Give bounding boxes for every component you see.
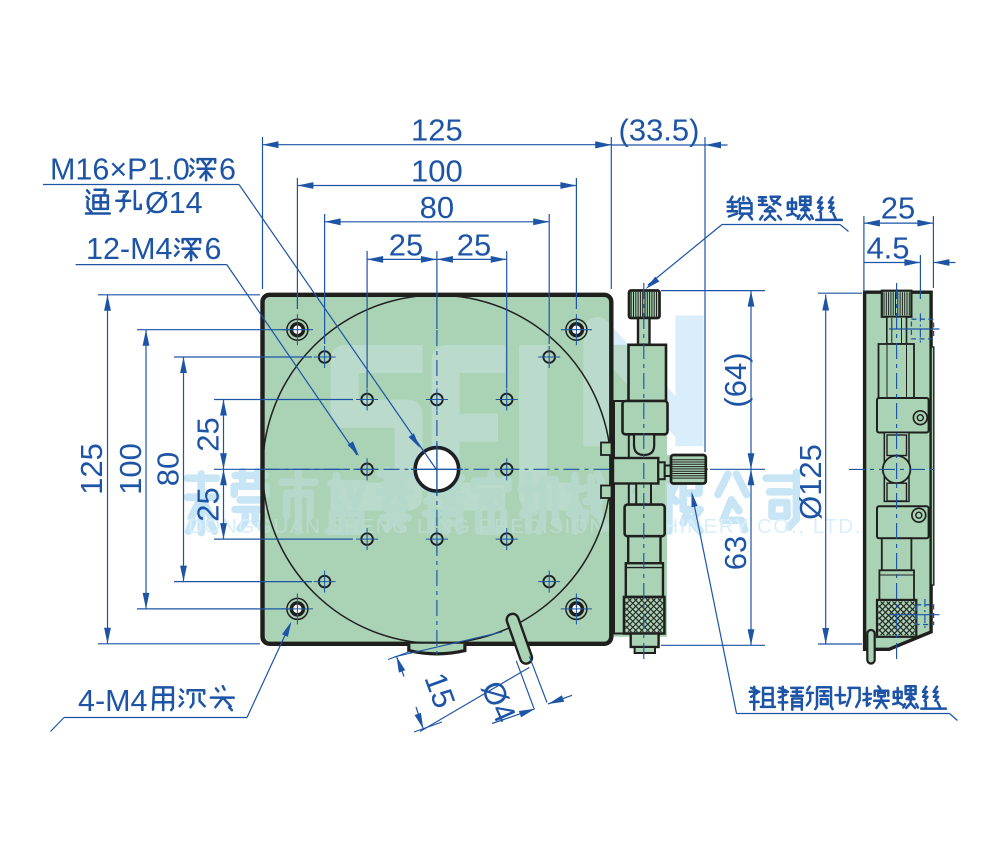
svg-text:63: 63 xyxy=(718,536,753,570)
svg-text:M16×P1.0: M16×P1.0 xyxy=(50,153,190,187)
svg-text:25: 25 xyxy=(457,228,491,263)
svg-text:4.5: 4.5 xyxy=(866,231,909,266)
svg-text:6: 6 xyxy=(219,153,236,187)
svg-text:100: 100 xyxy=(113,443,148,495)
svg-text:(64): (64) xyxy=(718,352,753,407)
svg-text:(33.5): (33.5) xyxy=(619,113,700,148)
svg-text:25: 25 xyxy=(881,191,915,226)
svg-text:12-M4: 12-M4 xyxy=(86,232,172,266)
svg-text:6: 6 xyxy=(205,232,222,266)
svg-text:25: 25 xyxy=(191,417,226,451)
svg-text:25: 25 xyxy=(191,487,226,521)
svg-text:25: 25 xyxy=(389,228,423,263)
svg-text:Ø14: Ø14 xyxy=(145,186,203,220)
svg-text:125: 125 xyxy=(411,113,463,148)
svg-text:4-M4: 4-M4 xyxy=(78,684,148,718)
svg-text:100: 100 xyxy=(411,154,463,189)
svg-text:Ø125: Ø125 xyxy=(793,444,828,520)
svg-text:125: 125 xyxy=(74,443,109,495)
svg-text:80: 80 xyxy=(420,190,454,225)
svg-text:80: 80 xyxy=(151,452,186,486)
